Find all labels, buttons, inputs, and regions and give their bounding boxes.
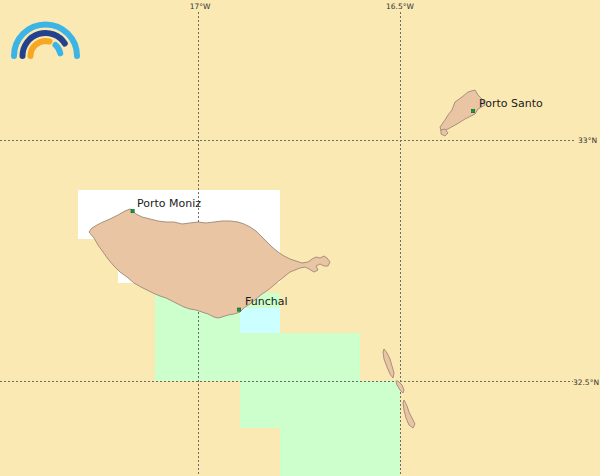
grid-label-32-5n: 32.5°N [573,378,599,387]
city-marker-porto-santo[interactable] [472,110,475,113]
city-marker-funchal[interactable] [238,308,241,311]
coverage-tile-cyan [240,308,280,333]
city-marker-porto-moniz[interactable] [131,210,134,213]
grid-label-16-5w: 16.5°W [386,2,414,11]
place-label-porto-santo: Porto Santo [479,97,543,110]
place-label-funchal: Funchal [245,295,288,308]
place-label-porto-moniz: Porto Moniz [137,197,201,210]
grid-label-33n: 33°N [578,136,597,145]
map-canvas[interactable]: Porto Moniz Funchal Porto Santo 17°W 16.… [0,0,600,476]
grid-label-17w: 17°W [190,2,211,11]
map-svg: Porto Moniz Funchal Porto Santo 17°W 16.… [0,0,600,476]
